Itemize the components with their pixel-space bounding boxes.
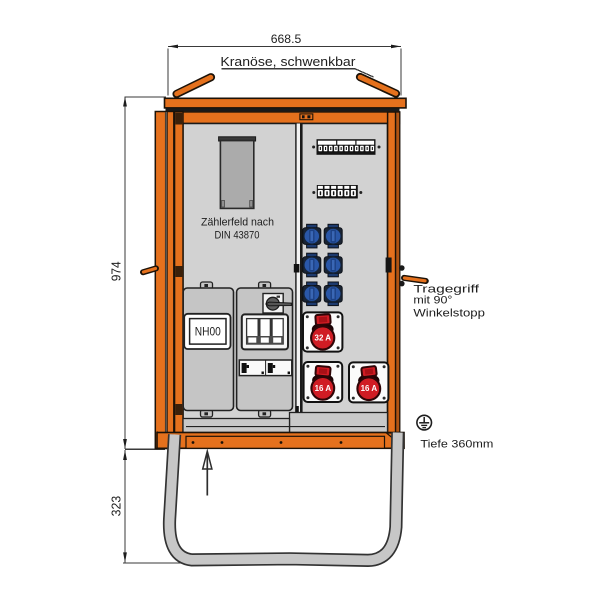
svg-text:668.5: 668.5 (271, 32, 302, 46)
svg-text:32 A: 32 A (315, 333, 332, 342)
svg-text:mit 90°: mit 90° (413, 295, 452, 307)
svg-text:Winkelstopp: Winkelstopp (413, 307, 485, 319)
svg-text:DIN 43870: DIN 43870 (215, 229, 260, 241)
svg-text:16 A: 16 A (315, 384, 332, 393)
svg-text:974: 974 (110, 261, 124, 281)
svg-text:Kranöse, schwenkbar: Kranöse, schwenkbar (220, 54, 356, 69)
svg-text:Tiefe 360mm: Tiefe 360mm (420, 439, 493, 451)
svg-text:Zählerfeld nach: Zählerfeld nach (201, 217, 274, 229)
svg-text:323: 323 (110, 496, 124, 516)
svg-text:16 A: 16 A (361, 384, 378, 393)
svg-text:NH00: NH00 (195, 324, 221, 338)
